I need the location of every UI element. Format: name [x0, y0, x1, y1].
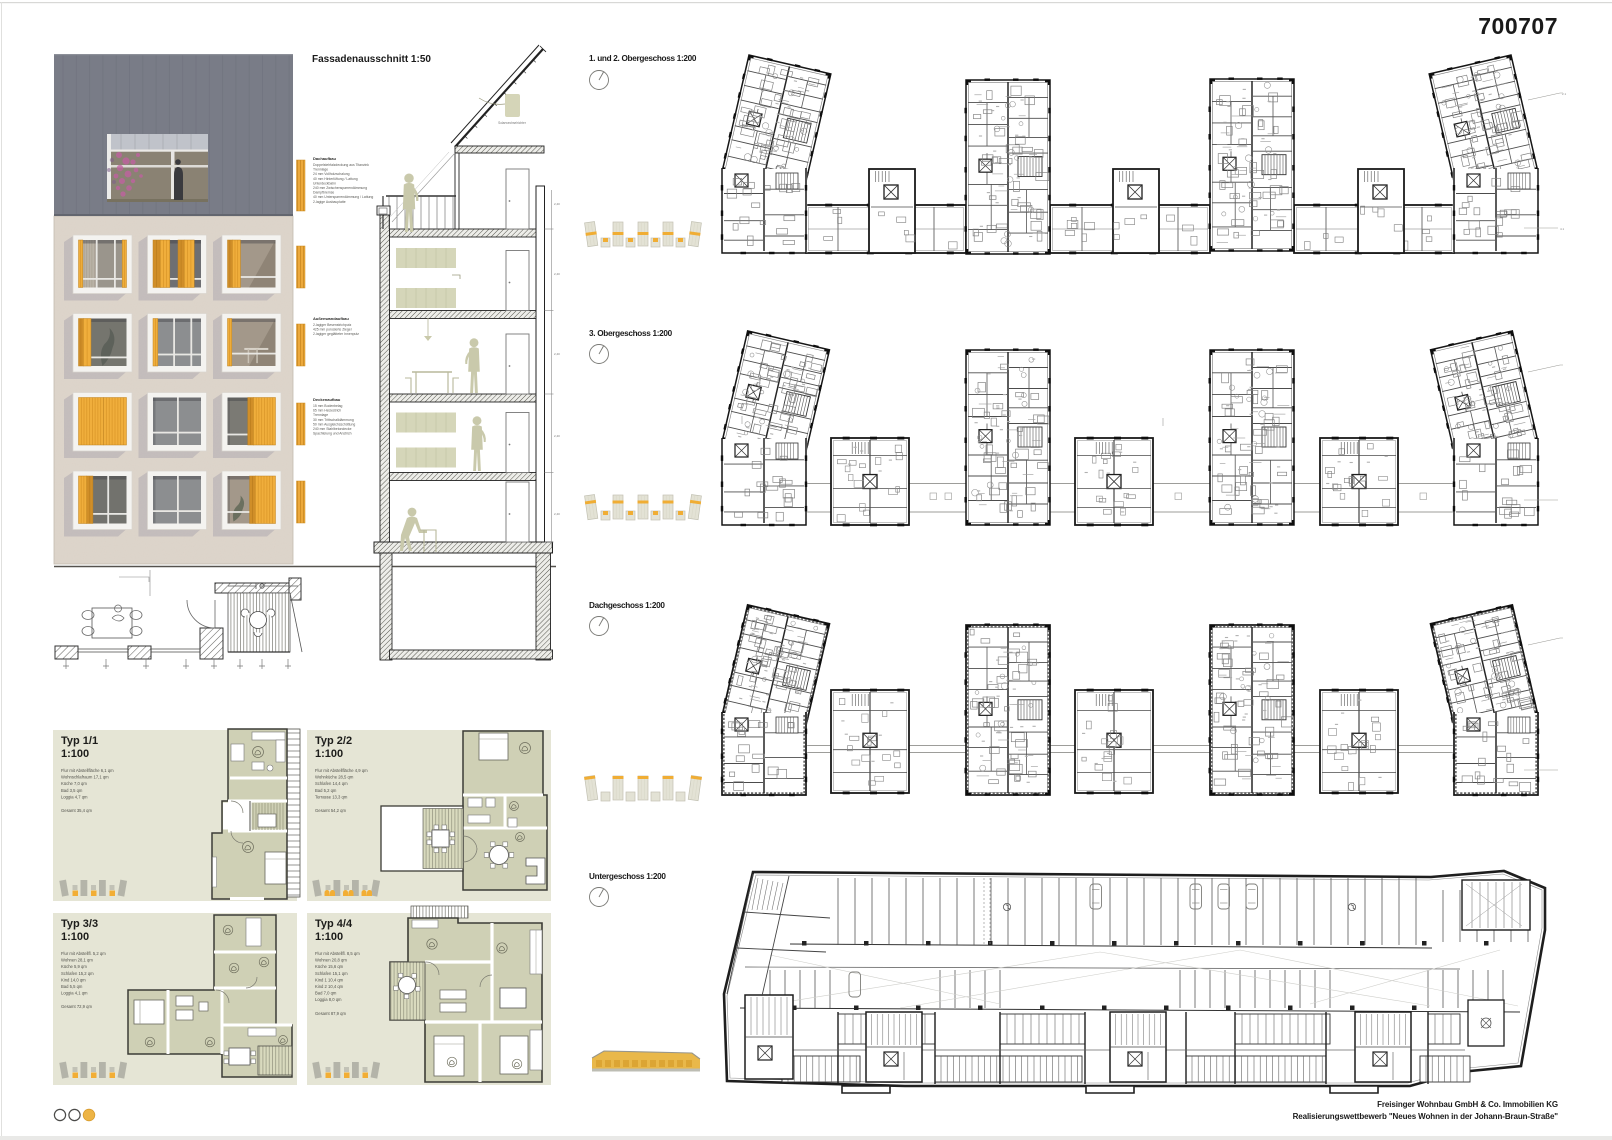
svg-text:Wohnen 28,1 qm: Wohnen 28,1 qm — [61, 958, 93, 963]
svg-text:2,40: 2,40 — [554, 512, 560, 516]
svg-text:2,40: 2,40 — [554, 272, 560, 276]
svg-text:Terrasse 13,3 qm: Terrasse 13,3 qm — [315, 794, 348, 799]
svg-text:1:100: 1:100 — [61, 931, 89, 943]
svg-text:4.1: 4.1 — [1560, 227, 1565, 231]
svg-text:2.1: 2.1 — [1562, 92, 1567, 96]
svg-text:65 mm Heizestrich: 65 mm Heizestrich — [313, 409, 341, 413]
svg-text:15 mm Bodenbelag: 15 mm Bodenbelag — [313, 404, 343, 408]
svg-text:Gesamt 72,9 qm: Gesamt 72,9 qm — [61, 1004, 92, 1009]
svg-text:Gesamt 87,9 qm: Gesamt 87,9 qm — [315, 1011, 346, 1016]
svg-text:Kind 1 10,4 qm: Kind 1 10,4 qm — [315, 977, 344, 982]
svg-text:Bad 5,2 qm: Bad 5,2 qm — [315, 788, 337, 793]
svg-text:3. Obergeschoss 1:200: 3. Obergeschoss 1:200 — [589, 329, 673, 338]
svg-text:2-lagiger Besenstrichputz: 2-lagiger Besenstrichputz — [313, 323, 352, 327]
svg-text:24 mm Vollholzschalung: 24 mm Vollholzschalung — [313, 172, 350, 176]
svg-text:Typ 4/4: Typ 4/4 — [315, 918, 353, 930]
svg-text:Fassadenausschnitt 1:50: Fassadenausschnitt 1:50 — [312, 54, 431, 65]
svg-text:2,40: 2,40 — [554, 202, 560, 206]
svg-text:Schlafen 15,1 qm: Schlafen 15,1 qm — [315, 971, 348, 976]
svg-text:40 mm Hinterlüftung / Lattung: 40 mm Hinterlüftung / Lattung — [313, 177, 358, 181]
svg-text:2-lagige Ausbauplatte: 2-lagige Ausbauplatte — [313, 200, 346, 204]
svg-text:Flur mit Abstellfl. 5,2 qm: Flur mit Abstellfl. 5,2 qm — [61, 951, 106, 956]
svg-text:Schlafen 14,4 qm: Schlafen 14,4 qm — [315, 781, 348, 786]
svg-text:2,40: 2,40 — [554, 434, 560, 438]
svg-text:2,40: 2,40 — [554, 352, 560, 356]
svg-text:Realisierungswettbewerb "Neues: Realisierungswettbewerb "Neues Wohnen in… — [1293, 1112, 1559, 1121]
svg-text:30 mm Trittschalldämmung: 30 mm Trittschalldämmung — [313, 418, 354, 422]
svg-text:Dachaufbau: Dachaufbau — [313, 156, 336, 161]
svg-text:Trennlage: Trennlage — [313, 413, 328, 417]
svg-text:Spachtelung und Anstrich: Spachtelung und Anstrich — [313, 432, 352, 436]
svg-text:Trennlage: Trennlage — [313, 168, 328, 172]
svg-text:50 mm Ausgleichsschüttung: 50 mm Ausgleichsschüttung — [313, 422, 355, 426]
svg-text:Gesamt 54,2 qm: Gesamt 54,2 qm — [315, 808, 346, 813]
svg-text:Loggia 4,7 qm: Loggia 4,7 qm — [61, 794, 88, 799]
svg-text:Deckenaufbau: Deckenaufbau — [313, 397, 341, 402]
svg-text:240 mm Stahlbetondecke: 240 mm Stahlbetondecke — [313, 427, 352, 431]
svg-text:40 mm Untersparrendämmung / La: 40 mm Untersparrendämmung / Lattung — [313, 195, 373, 199]
svg-text:Dampfbremse: Dampfbremse — [313, 191, 334, 195]
svg-text:Wohnen 20,8 qm: Wohnen 20,8 qm — [315, 958, 347, 963]
svg-text:Loggia 4,1 qm: Loggia 4,1 qm — [61, 991, 88, 996]
svg-text:Flur mit Abstellfl. 8,5 qm: Flur mit Abstellfl. 8,5 qm — [315, 951, 360, 956]
svg-text:1:100: 1:100 — [315, 748, 343, 760]
svg-text:Freisinger Wohnbau GmbH & Co.: Freisinger Wohnbau GmbH & Co. Immobilien… — [1377, 1100, 1558, 1109]
svg-text:425 mm porosierte Ziegel: 425 mm porosierte Ziegel — [313, 328, 352, 332]
svg-text:1. und 2. Obergeschoss 1:200: 1. und 2. Obergeschoss 1:200 — [589, 54, 697, 63]
svg-text:Kind 14,0 qm: Kind 14,0 qm — [61, 977, 86, 982]
svg-text:Flur mit Abstellfläche 6,1 qm: Flur mit Abstellfläche 6,1 qm — [61, 768, 114, 773]
svg-text:Typ 3/3: Typ 3/3 — [61, 918, 98, 930]
svg-text:Bad 3,5 qm: Bad 3,5 qm — [61, 788, 83, 793]
svg-text:Küche 7,0 qm: Küche 7,0 qm — [61, 781, 87, 786]
svg-text:Bad 7,0 qm: Bad 7,0 qm — [315, 991, 337, 996]
svg-text:Bad 5,5 qm: Bad 5,5 qm — [61, 984, 83, 989]
svg-text:Kind 2 10,4 qm: Kind 2 10,4 qm — [315, 984, 344, 989]
svg-text:Küche 5,9 qm: Küche 5,9 qm — [61, 964, 87, 969]
svg-text:Untergeschoss 1:200: Untergeschoss 1:200 — [589, 872, 666, 881]
svg-text:Typ 1/1: Typ 1/1 — [61, 735, 98, 747]
svg-text:Wohnküche 28,5 qm: Wohnküche 28,5 qm — [315, 775, 354, 780]
svg-text:Schlafen 15,2 qm: Schlafen 15,2 qm — [61, 971, 94, 976]
svg-text:Doppelstehfalzdeckung aus Tita: Doppelstehfalzdeckung aus Titanzink — [313, 163, 369, 167]
svg-text:Außenwandaufbau: Außenwandaufbau — [313, 316, 349, 321]
svg-text:Küche 15,6 qm: Küche 15,6 qm — [315, 964, 344, 969]
svg-text:700707: 700707 — [1478, 13, 1558, 39]
svg-text:Unterdeckbahn: Unterdeckbahn — [313, 181, 336, 185]
svg-text:Loggia 8,0 qm: Loggia 8,0 qm — [315, 997, 342, 1002]
svg-text:1:100: 1:100 — [315, 931, 343, 943]
svg-text:1:100: 1:100 — [61, 748, 89, 760]
svg-text:Wohnschlafraum 17,1 qm: Wohnschlafraum 17,1 qm — [61, 775, 109, 780]
svg-text:2-lagiger geglätteter Innenput: 2-lagiger geglätteter Innenputz — [313, 332, 359, 336]
svg-text:Gesamt 35,4 qm: Gesamt 35,4 qm — [61, 808, 92, 813]
svg-text:Typ 2/2: Typ 2/2 — [315, 735, 352, 747]
svg-text:Solarwechselrichter: Solarwechselrichter — [498, 121, 527, 125]
svg-text:240 mm Zwischensparrendämmung: 240 mm Zwischensparrendämmung — [313, 186, 367, 190]
svg-text:Dachgeschoss 1:200: Dachgeschoss 1:200 — [589, 601, 665, 610]
svg-text:Flur mit Abstellfläche 4,9 qm: Flur mit Abstellfläche 4,9 qm — [315, 768, 368, 773]
